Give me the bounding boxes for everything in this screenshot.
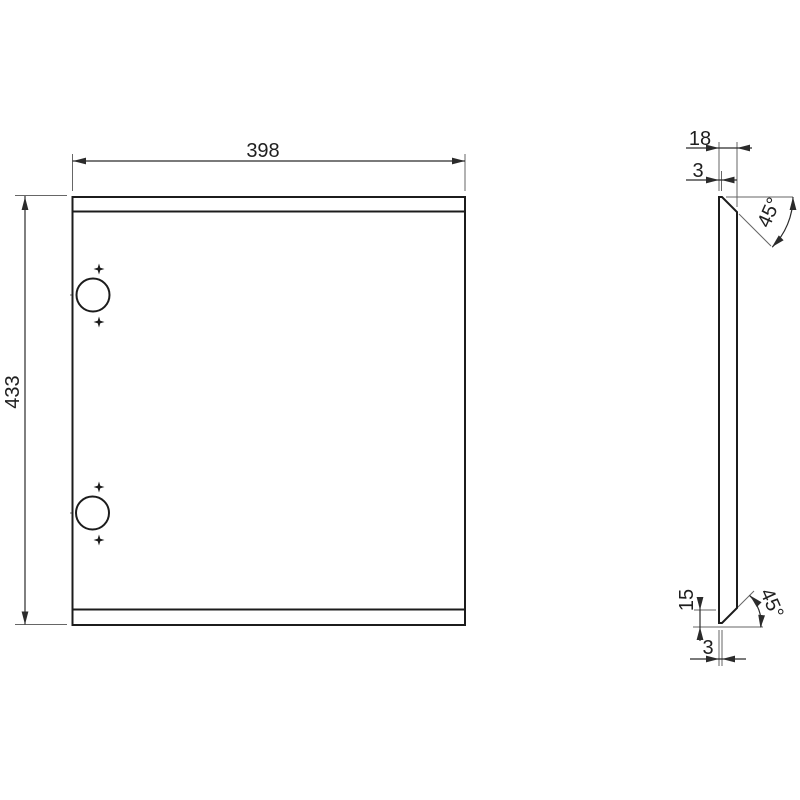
arrowhead bbox=[722, 177, 735, 184]
arrowhead bbox=[722, 656, 735, 663]
arrowhead bbox=[22, 197, 29, 210]
arrowhead bbox=[706, 177, 719, 184]
dim-label-bottom-thickness: 3 bbox=[702, 637, 713, 659]
drawing-canvas: 39843318345°1545°3 bbox=[0, 0, 800, 800]
dim-label-height: 433 bbox=[2, 375, 24, 408]
side-profile-outline bbox=[719, 197, 737, 623]
dim-label-chamfer-height: 15 bbox=[676, 589, 698, 611]
arrowhead bbox=[73, 158, 86, 165]
dim-label-depth: 18 bbox=[689, 128, 711, 150]
arrowhead bbox=[452, 158, 465, 165]
dim-label-width: 398 bbox=[246, 140, 279, 162]
panel-outline bbox=[73, 197, 466, 625]
drawing-page: 39843318345°1545°3 bbox=[0, 0, 800, 800]
arrowhead bbox=[22, 612, 29, 625]
arrowhead bbox=[790, 197, 797, 210]
dim-label-top-thickness: 3 bbox=[692, 160, 703, 182]
arrowhead bbox=[737, 145, 750, 152]
dim-label-top-angle: 45° bbox=[753, 194, 785, 231]
arrowhead bbox=[770, 235, 784, 249]
arrowhead bbox=[757, 615, 765, 629]
